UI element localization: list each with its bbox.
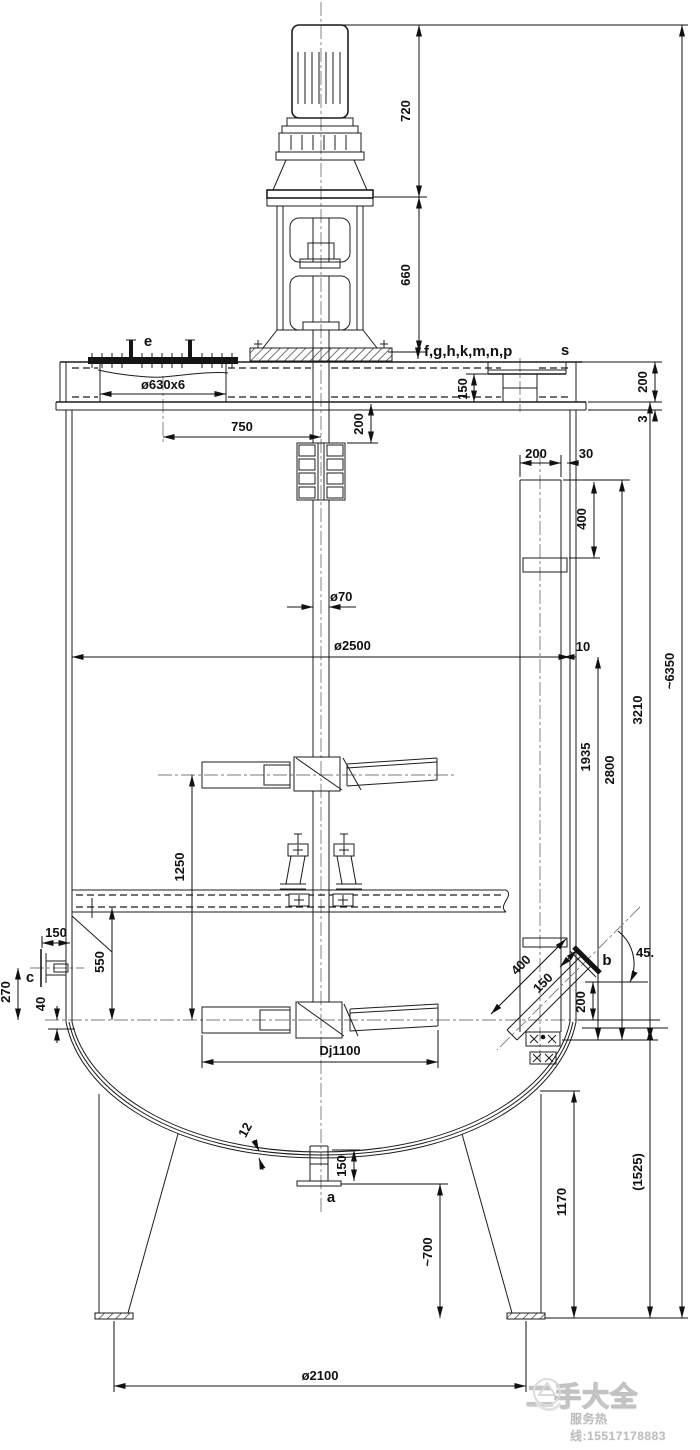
top-nozzles-label: f,g,h,k,m,n,p [424, 343, 512, 360]
right-dims: 720 660 1935 2800 3210 ~6350 [322, 25, 688, 1318]
dim-overall-height: ~6350 [662, 653, 677, 690]
foot-circle-dim: ø2100 [114, 1321, 526, 1392]
dim-pipe-drop: 400 [574, 508, 589, 530]
dim-c-550: 550 [92, 951, 107, 973]
watermark-logo-icon [526, 1375, 568, 1417]
dim-manhole-offset: 750 [231, 419, 253, 434]
bottom-impeller: Dj1100 [202, 1002, 438, 1068]
dim-wall-gap: 10 [576, 639, 590, 654]
vessel-drawing-canvas: ø630x6 150 f,g,h,k,m,n,p s e 200 3 200 7… [0, 0, 700, 1450]
manhole: ø630x6 [88, 340, 238, 402]
dim-b-height: 200 [573, 991, 588, 1013]
dim-pipe-gap: 30 [579, 446, 593, 461]
watermark: 二手大全 服务热线:15517178883 [526, 1375, 696, 1444]
dip-pipe-feet [526, 1032, 560, 1064]
dim-impeller-spacing: 1250 [172, 853, 187, 882]
dim-3210: 3210 [630, 696, 645, 725]
nozzle-c: c 150 550 270 40 [0, 908, 112, 1043]
dim-a-ground: ~700 [420, 1237, 435, 1266]
nozzle-b: 400 150 b 45. 200 [491, 907, 654, 1050]
dim-1935: 1935 [578, 743, 593, 772]
dim-shaft-stub: 200 [351, 413, 366, 435]
impeller-code-label: Dj1100 [319, 1043, 360, 1058]
dim-pipe-od: 200 [525, 446, 547, 461]
nozzle-a: a 150 ~700 [297, 1146, 448, 1318]
nozzle-s-label: s [561, 342, 569, 359]
manhole-size-label: ø630x6 [141, 377, 185, 392]
nozzle-c-label: c [26, 969, 34, 986]
top-head [56, 362, 586, 410]
dim-c-length: 150 [45, 925, 67, 940]
dim-drive-height: 660 [398, 264, 413, 286]
dim-shaft-dia: ø70 [330, 589, 352, 604]
dim-2800: 2800 [602, 756, 617, 785]
dim-tank-dia: ø2500 [334, 638, 371, 653]
mixing-tank-drawing: ø630x6 150 f,g,h,k,m,n,p s e 200 3 200 7… [0, 0, 700, 1450]
nozzle-s: 150 [455, 362, 566, 402]
dim-head-height: 200 [635, 371, 650, 393]
dim-s-projection: 150 [455, 378, 470, 400]
top-labels: f,g,h,k,m,n,p s e 200 3 [144, 333, 662, 423]
watermark-hotline: 服务热线:15517178883 [570, 1410, 696, 1444]
nozzle-e-label: e [144, 333, 152, 350]
dim-motor-height: 720 [398, 100, 413, 122]
motor [273, 25, 367, 190]
legs: 1170 (1525) [95, 1020, 688, 1319]
dip-pipe: 200 30 400 10 [520, 446, 630, 1032]
dim-b-projection: 150 [530, 970, 556, 996]
dim-b-angle: 45. [636, 945, 654, 960]
dim-bottom-thickness: 12 [235, 1120, 255, 1140]
dim-leg-height: 1170 [554, 1188, 569, 1216]
nozzle-b-label: b [602, 952, 611, 969]
dim-b-length: 400 [508, 952, 534, 978]
dim-c-270: 270 [0, 981, 13, 1003]
motor-fins [298, 52, 340, 104]
dim-head-gap: 3 [635, 415, 650, 422]
dim-leg-ref: (1525) [630, 1153, 645, 1191]
dim-foot-circle: ø2100 [302, 1368, 339, 1383]
dim-c-40: 40 [33, 997, 48, 1011]
dim-a-projection: 150 [334, 1155, 349, 1177]
manhole-lugs [126, 340, 195, 358]
nozzle-a-label: a [327, 1189, 336, 1206]
